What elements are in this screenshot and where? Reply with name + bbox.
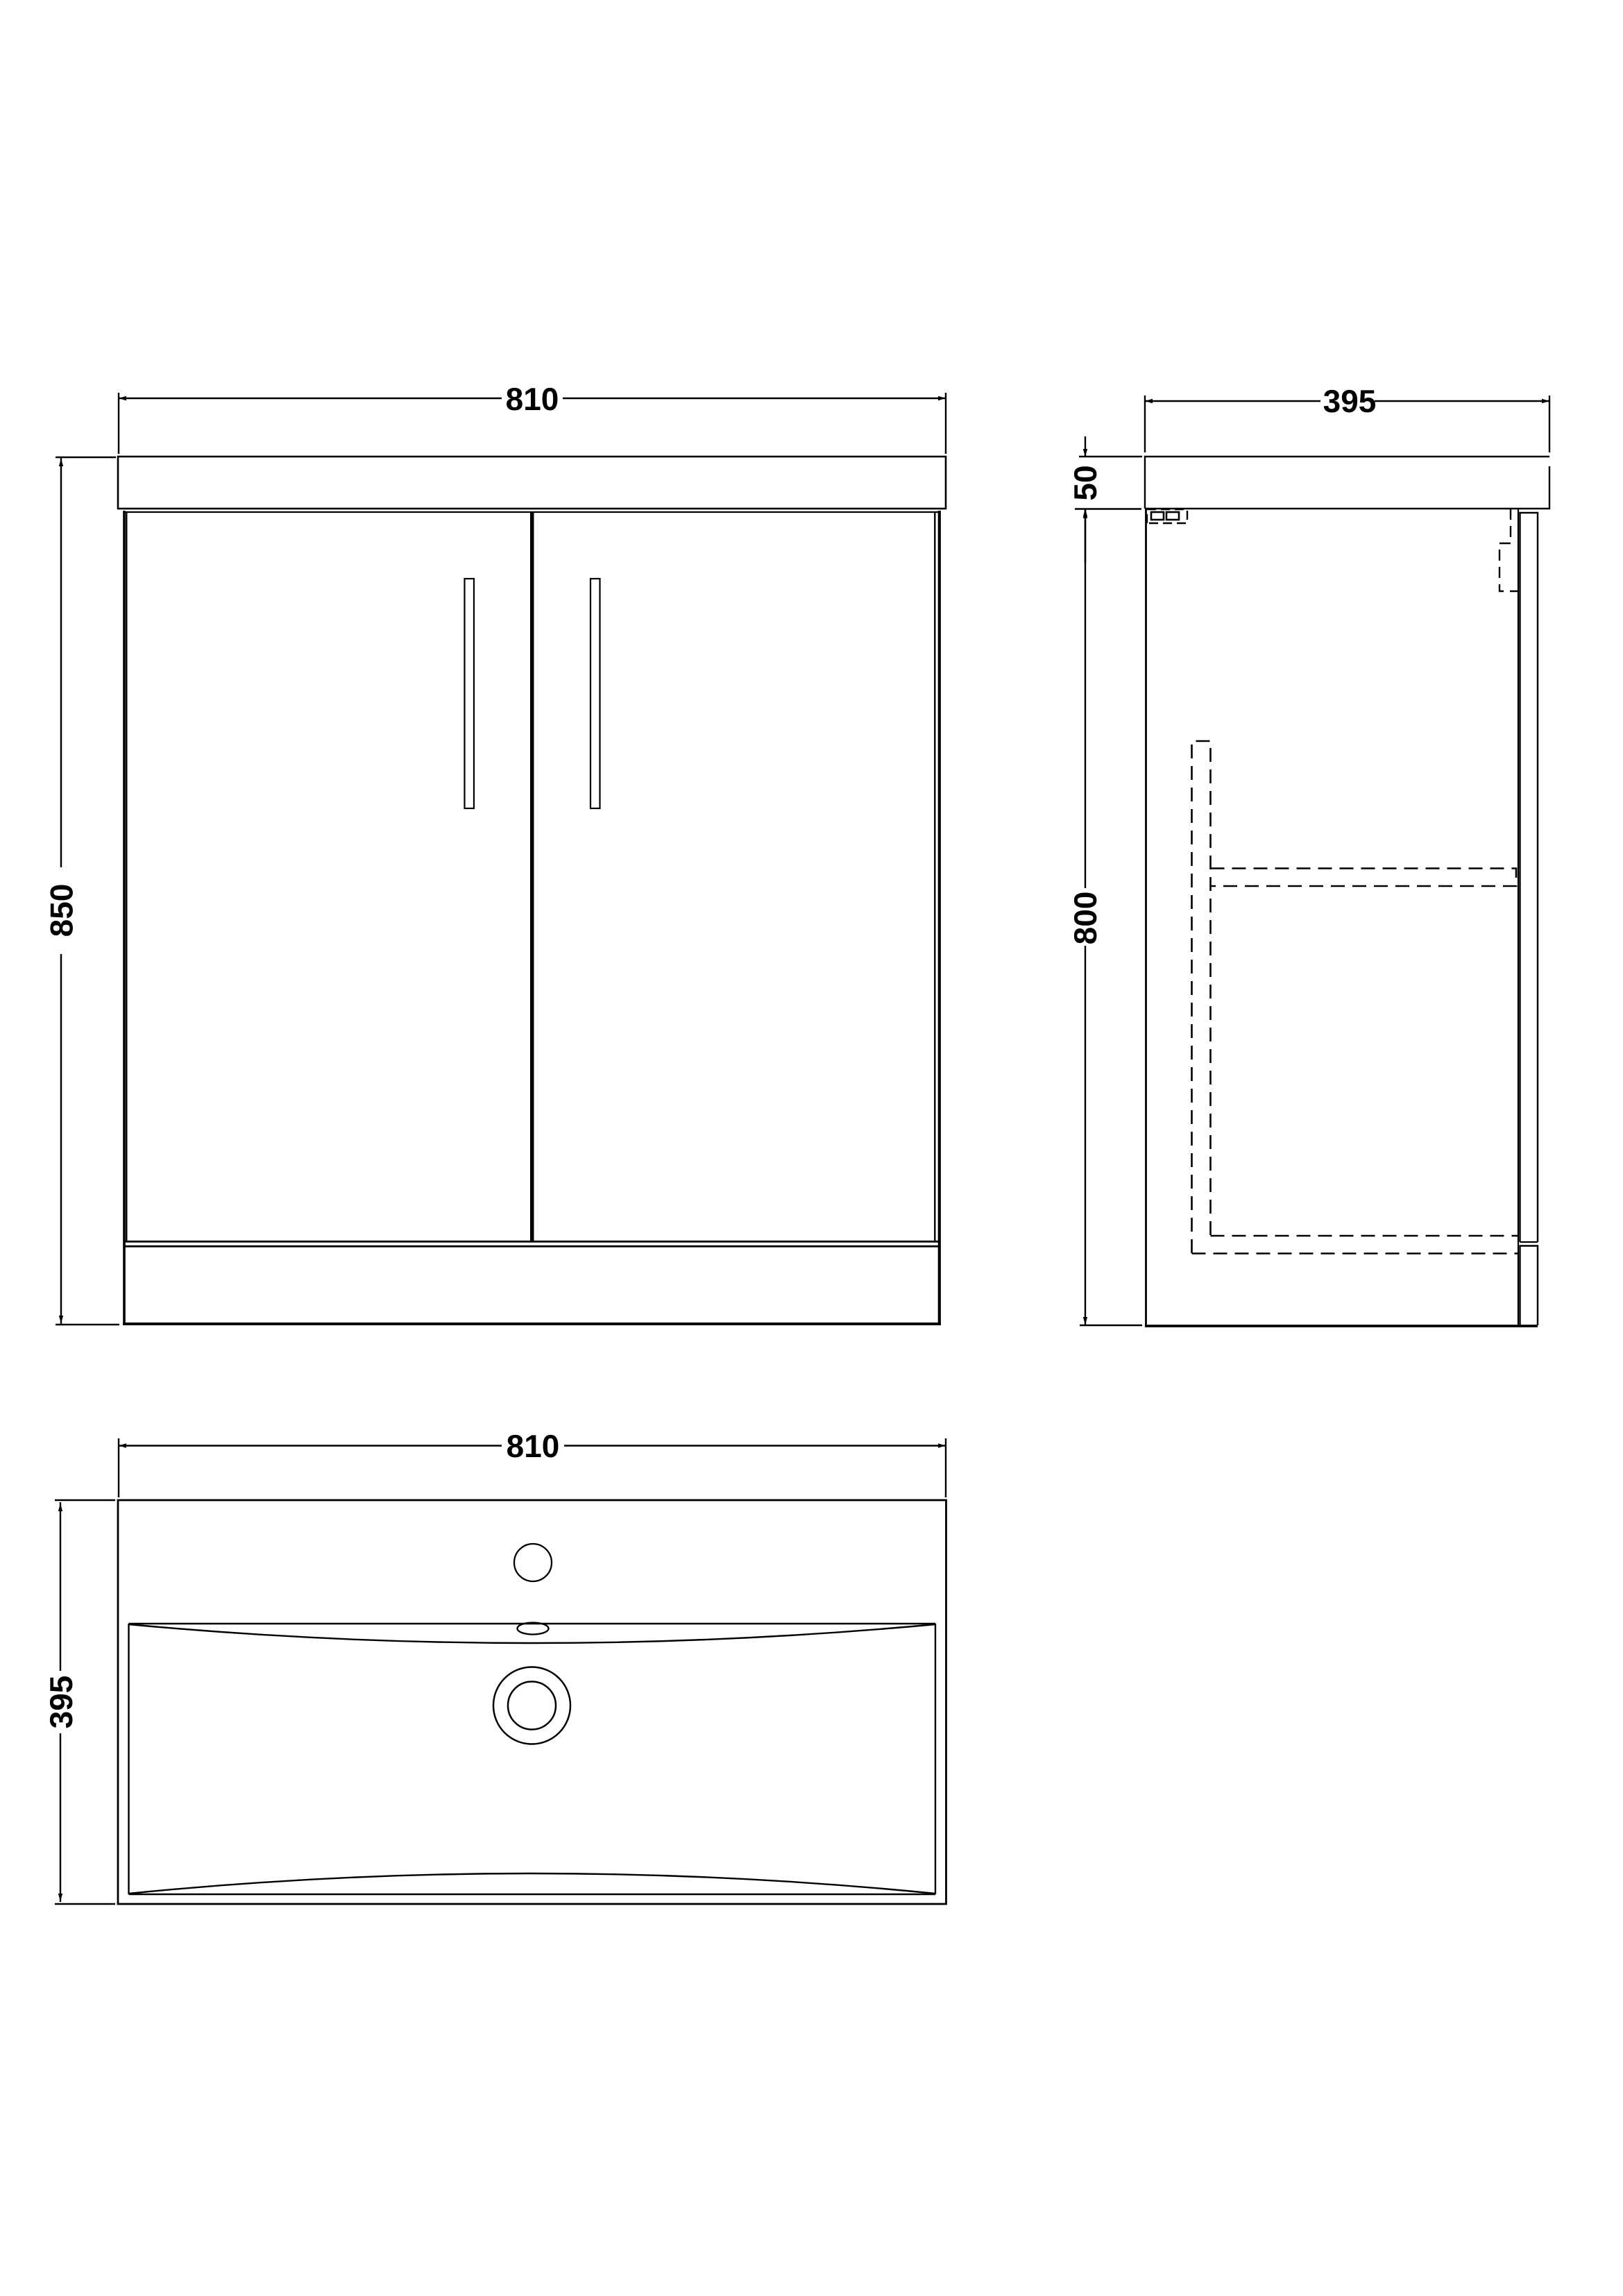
svg-text:50: 50 <box>1067 465 1103 500</box>
svg-text:810: 810 <box>507 1428 560 1464</box>
svg-text:395: 395 <box>1323 383 1377 419</box>
svg-text:800: 800 <box>1067 892 1103 945</box>
svg-text:850: 850 <box>44 884 80 937</box>
svg-text:395: 395 <box>43 1676 79 1729</box>
svg-text:810: 810 <box>506 381 559 417</box>
